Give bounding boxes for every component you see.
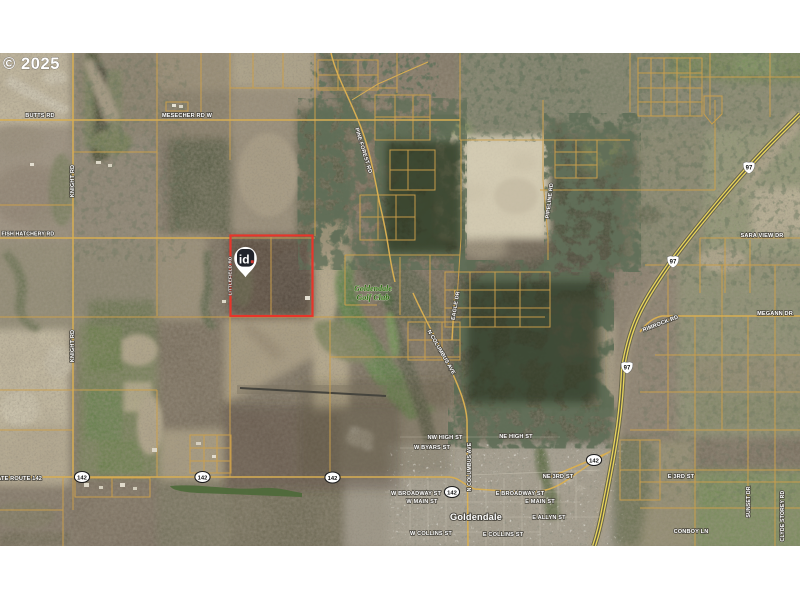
svg-text:Golf Club: Golf Club (357, 293, 390, 302)
svg-text:CONBOY LN: CONBOY LN (674, 529, 709, 535)
svg-text:142: 142 (77, 475, 87, 481)
svg-text:STATE ROUTE 142: STATE ROUTE 142 (0, 476, 42, 482)
svg-text:Goldendale: Goldendale (354, 284, 392, 293)
svg-text:CLYDE STOREY RD: CLYDE STOREY RD (780, 490, 786, 541)
svg-text:97: 97 (670, 259, 677, 265)
svg-text:W COLLINS ST: W COLLINS ST (410, 531, 452, 537)
svg-text:97: 97 (624, 365, 631, 371)
svg-text:E 3RD ST: E 3RD ST (668, 474, 695, 480)
svg-text:NE HIGH ST: NE HIGH ST (499, 434, 533, 440)
svg-text:E COLLINS ST: E COLLINS ST (483, 532, 524, 538)
svg-text:E MAIN ST: E MAIN ST (525, 499, 555, 505)
svg-text:FISH HATCHERY RD: FISH HATCHERY RD (2, 232, 55, 238)
svg-text:Goldendale: Goldendale (450, 512, 502, 522)
svg-text:E BROADWAY ST: E BROADWAY ST (496, 491, 545, 497)
svg-text:W BROADWAY ST: W BROADWAY ST (391, 491, 442, 497)
svg-text:SARA VIEW DR: SARA VIEW DR (741, 233, 784, 239)
svg-text:W BYARS ST: W BYARS ST (414, 445, 451, 451)
svg-text:MEGANN DR: MEGANN DR (757, 311, 793, 317)
svg-text:© 2025: © 2025 (3, 55, 60, 73)
svg-text:142: 142 (198, 475, 208, 481)
svg-text:LITTLEFIELD RD: LITTLEFIELD RD (228, 256, 233, 295)
svg-text:NW HIGH ST: NW HIGH ST (427, 435, 462, 441)
svg-text:142: 142 (328, 476, 338, 482)
svg-text:97: 97 (746, 165, 753, 171)
svg-text:E ALLYN ST: E ALLYN ST (532, 515, 566, 521)
svg-text:id: id (239, 253, 250, 267)
svg-text:KNIGHT RD: KNIGHT RD (70, 165, 76, 197)
svg-text:142: 142 (447, 490, 457, 496)
svg-text:N COLUMBUS AVE: N COLUMBUS AVE (467, 442, 473, 491)
svg-text:MESECHER RD W: MESECHER RD W (162, 113, 213, 119)
svg-text:142: 142 (589, 458, 599, 464)
svg-text:W MAIN ST: W MAIN ST (406, 499, 438, 505)
svg-text:BUTTS RD: BUTTS RD (25, 113, 54, 119)
svg-text:NE 3RD ST: NE 3RD ST (543, 474, 574, 480)
svg-text:SUNSET DR: SUNSET DR (746, 486, 752, 517)
svg-text:KNIGHT RD: KNIGHT RD (70, 330, 76, 362)
